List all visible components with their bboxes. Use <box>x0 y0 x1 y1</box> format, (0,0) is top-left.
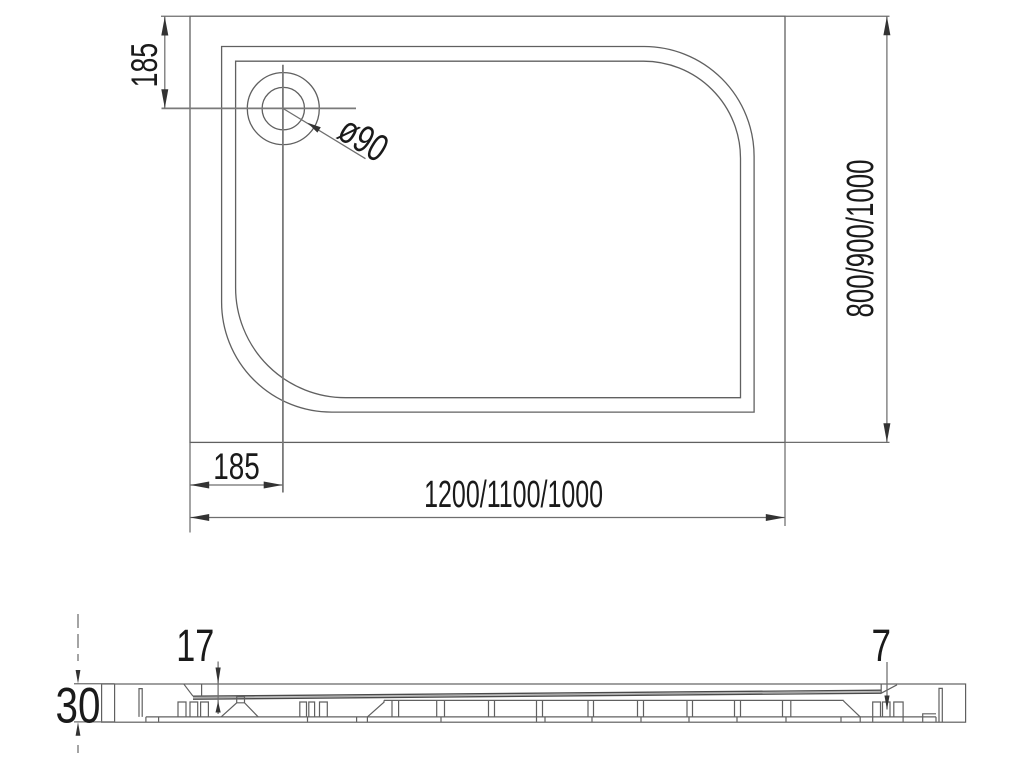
svg-text:185: 185 <box>123 43 165 88</box>
svg-text:17: 17 <box>176 620 214 671</box>
svg-text:1200/1100/1000: 1200/1100/1000 <box>424 474 603 516</box>
svg-text:7: 7 <box>871 620 891 671</box>
svg-text:800/900/1000: 800/900/1000 <box>840 160 882 318</box>
svg-text:185: 185 <box>213 445 260 487</box>
svg-text:30: 30 <box>56 677 101 733</box>
